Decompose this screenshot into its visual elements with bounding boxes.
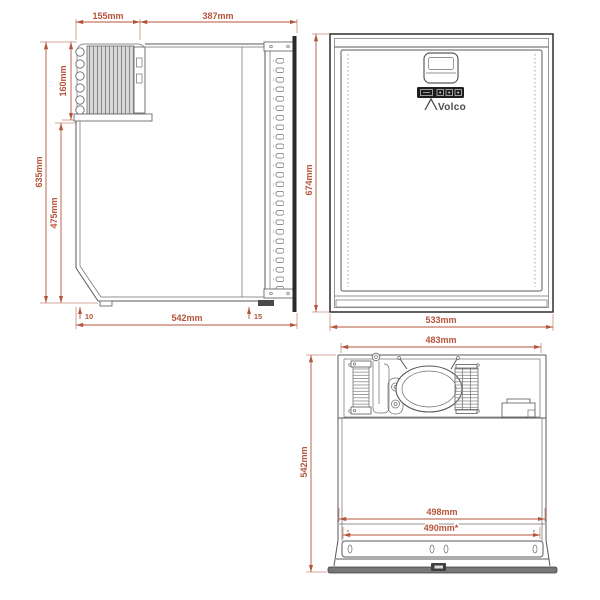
dim-label-533: 533mm [425,315,456,325]
door-hinge-bar [328,530,557,573]
top-view: 483mm 542mm 498mm 490mm* [299,335,557,573]
technical-drawing-page: 155mm 387mm 160mm 635mm 475mm 10 [0,0,600,600]
side-view: 155mm 387mm 160mm 635mm 475mm 10 [34,11,297,329]
dim-label-155: 155mm [92,11,123,21]
dim-label-542-side: 542mm [171,313,202,323]
control-panel [417,87,464,98]
dim-top-490: 490mm* [343,523,540,539]
condenser-fins [87,46,134,114]
dim-label-10: 10 [85,312,93,321]
dim-front-674: 674mm [304,34,330,312]
dim-label-542-top: 542mm [299,446,309,477]
dim-side-387: 387mm [140,11,297,33]
dim-top-498: 498mm [339,507,545,522]
hinge-bar [342,541,543,557]
condenser-block [455,365,478,414]
dim-side-10: 10 [80,307,93,321]
door-front-panel-edge [293,36,297,312]
brand-logo: Volco [425,99,466,113]
door-bottom-foot [258,300,274,306]
compressor-base-plate [74,114,152,121]
front-inner-frame [335,39,549,308]
dim-label-674: 674mm [304,164,314,195]
dim-top-542: 542mm [299,355,336,572]
side-door-edge [242,36,297,312]
door-liner-slots [273,56,284,290]
refrigerator-dimension-drawing: 155mm 387mm 160mm 635mm 475mm 10 [0,0,600,600]
front-bottom-rail [336,300,547,307]
dim-label-387: 387mm [202,11,233,21]
dim-label-498: 498mm [426,507,457,517]
side-compressor-unit [74,44,152,121]
refrigerant-tubing [372,353,389,413]
dim-side-542: 542mm [76,307,297,329]
dim-top-483: 483mm [341,335,541,353]
front-view: Volco 674mm 533mm [304,34,553,331]
dim-label-635: 635mm [34,156,44,187]
logo-text: Volco [438,102,466,113]
dim-label-160: 160mm [58,65,68,96]
dim-label-483: 483mm [425,335,456,345]
filter-dryer [351,361,371,414]
junction-box [502,399,535,417]
compressor-side-panel [134,47,145,113]
dim-label-490: 490mm* [424,523,459,533]
compressor-dome [396,357,462,413]
front-outer-frame [330,34,553,312]
front-door-panel [341,50,542,291]
dim-side-475: 475mm [49,123,76,303]
compressor-compartment [344,353,540,417]
dim-label-15: 15 [254,312,262,321]
dim-side-155: 155mm [76,11,140,40]
dim-label-475: 475mm [49,197,59,228]
logo-triangle-icon [425,99,437,110]
dim-side-15: 15 [249,307,262,321]
door-handle-recess [424,53,458,83]
dim-front-533: 533mm [330,314,553,331]
cabinet-foot [100,301,112,306]
